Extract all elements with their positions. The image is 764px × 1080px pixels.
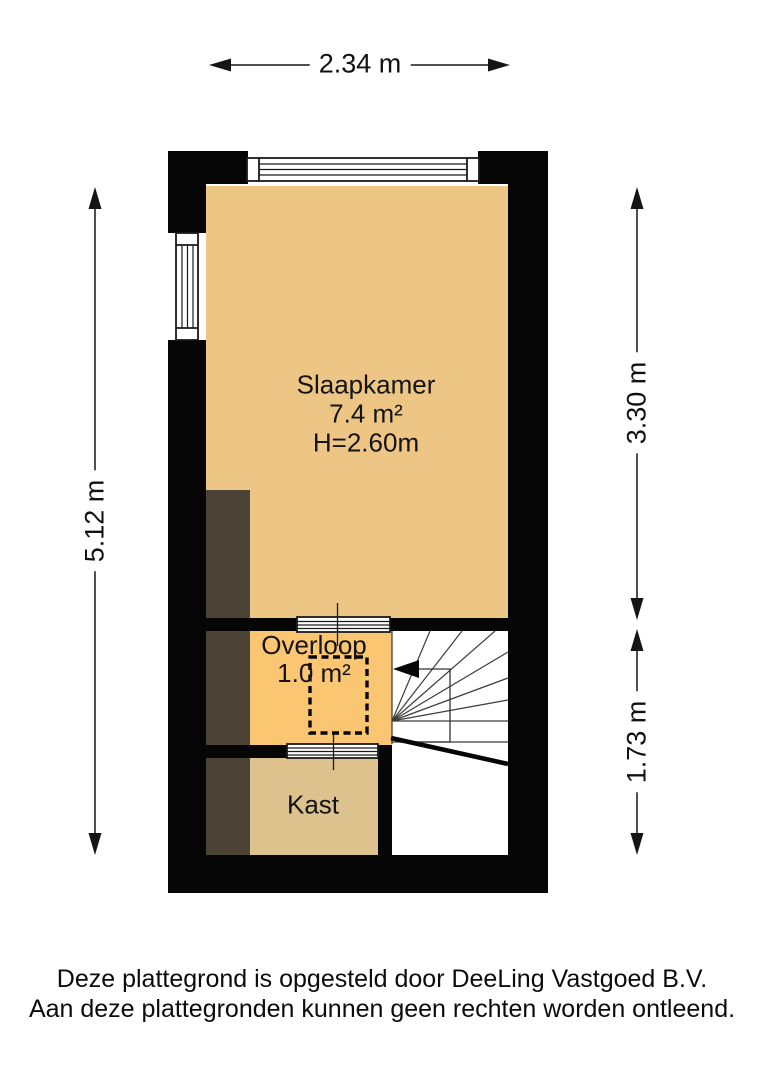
window-top	[247, 158, 479, 181]
wall-right	[508, 151, 548, 893]
stairs-direction-arrow-icon	[393, 660, 419, 678]
dimension-label-left: 5.12 m	[80, 471, 111, 572]
room-name: Overloop	[261, 631, 367, 659]
room-area: 7.4 m²	[297, 400, 436, 429]
wall-left-lower	[168, 340, 206, 893]
wall-bottom	[168, 855, 548, 893]
room-name: Kast	[287, 791, 339, 820]
floor-plan-page: 2.34 m 5.12 m 3.30 m 1.73 m Slaapkamer 7…	[0, 0, 764, 1080]
wall-top-left	[168, 151, 248, 184]
wall-bedroom-stairwell	[390, 618, 508, 631]
footer-line2: Aan deze plattegronden kunnen geen recht…	[29, 994, 735, 1024]
room-label-overloop: Overloop 1.0 m²	[261, 631, 367, 687]
dimension-label-right-upper: 3.30 m	[622, 353, 653, 454]
room-name: Slaapkamer	[297, 371, 436, 400]
footer-line1: Deze plattegrond is opgesteld door DeeLi…	[29, 964, 735, 994]
wall-landing-closet-left	[206, 745, 287, 758]
dimension-label-right-lower: 1.73 m	[622, 692, 653, 793]
room-label-slaapkamer: Slaapkamer 7.4 m² H=2.60m	[297, 371, 436, 458]
room-area: 1.0 m²	[261, 659, 367, 687]
dark-zone	[206, 490, 250, 855]
winder-staircase	[391, 631, 508, 764]
wall-closet-right	[378, 745, 392, 855]
footer-disclaimer: Deze plattegrond is opgesteld door DeeLi…	[29, 964, 735, 1024]
window-left	[176, 233, 198, 340]
room-ceiling-height: H=2.60m	[297, 429, 436, 458]
room-label-kast: Kast	[287, 791, 339, 820]
floor-plan-drawing	[0, 0, 764, 1080]
dimension-label-top: 2.34 m	[310, 49, 411, 80]
stairs-walk-line	[400, 669, 450, 742]
